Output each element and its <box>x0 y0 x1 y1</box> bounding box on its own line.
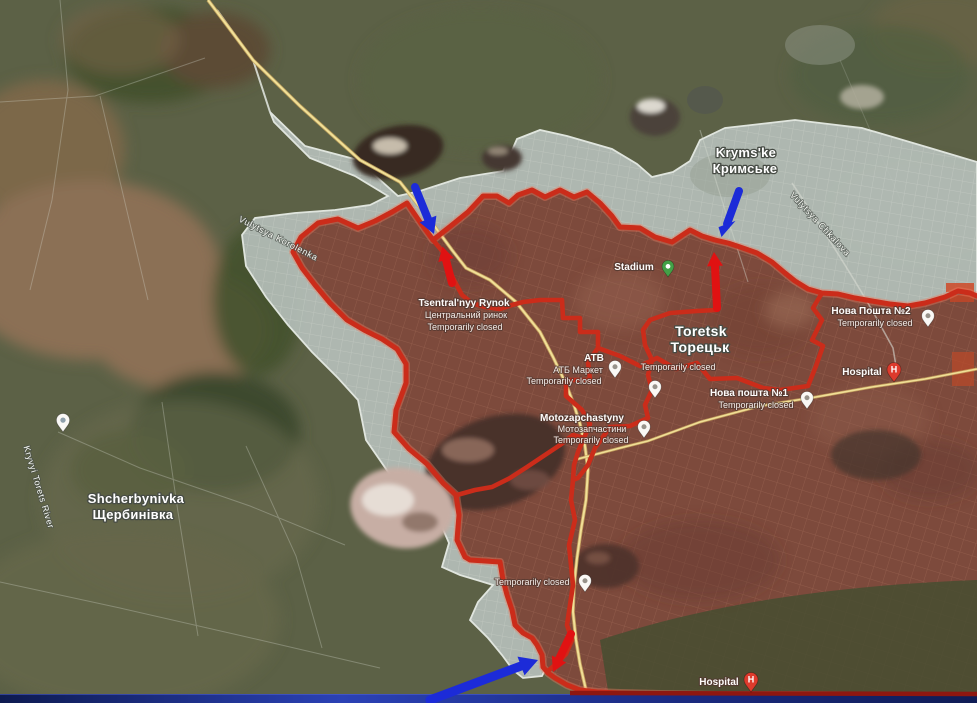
poi-stadium-name: Stadium <box>614 262 654 273</box>
poi-hospital-east-name: Hospital <box>842 367 882 378</box>
town-krymske-latin: Kryms'ke <box>716 145 776 160</box>
poi-rynok-status: Temporarily closed <box>427 322 502 332</box>
poi-atb-status: Temporarily closed <box>526 376 601 386</box>
poi-closed-south-status: Temporarily closed <box>494 577 569 587</box>
poi-moto-local: Мотозапчастини <box>558 424 627 434</box>
poi-nova-poshta-2-name: Нова Пошта №2 <box>831 306 911 317</box>
front-line-bottom-dark <box>570 693 977 694</box>
poi-moto-name: Motozapchastyny <box>540 413 624 424</box>
poi-atb-name: ATB <box>584 353 604 364</box>
poi-hospital-south-name: Hospital <box>699 677 739 688</box>
poi-nova-poshta-1-name: Нова пошта №1 <box>710 388 789 399</box>
poi-closed-center-status: Temporarily closed <box>640 362 715 372</box>
town-shcherbynivka-cyrillic: Щербинівка <box>93 507 174 522</box>
poi-nova-poshta-1-status: Temporarily closed <box>718 400 793 410</box>
hospital-icon: H <box>748 675 755 685</box>
poi-rynok-local: Центральний ринок <box>425 310 507 320</box>
poi-nova-poshta-2-status: Temporarily closed <box>837 318 912 328</box>
poi-atb-local: АТБ Маркет <box>553 365 603 375</box>
town-toretsk-cyrillic: Торецьк <box>671 339 731 355</box>
poi-moto-status: Temporarily closed <box>553 435 628 445</box>
map-viewport[interactable]: H H Kryms'ke Кримське Toretsk Торецьк Sh… <box>0 0 977 703</box>
satellite-map: H H Kryms'ke Кримське Toretsk Торецьк Sh… <box>0 0 977 703</box>
town-krymske-cyrillic: Кримське <box>713 161 778 176</box>
poi-rynok-name: Tsentral'nyy Rynok <box>418 298 510 309</box>
town-toretsk-latin: Toretsk <box>675 323 727 339</box>
town-shcherbynivka-latin: Shcherbynivka <box>88 491 185 506</box>
hospital-icon: H <box>891 365 898 375</box>
